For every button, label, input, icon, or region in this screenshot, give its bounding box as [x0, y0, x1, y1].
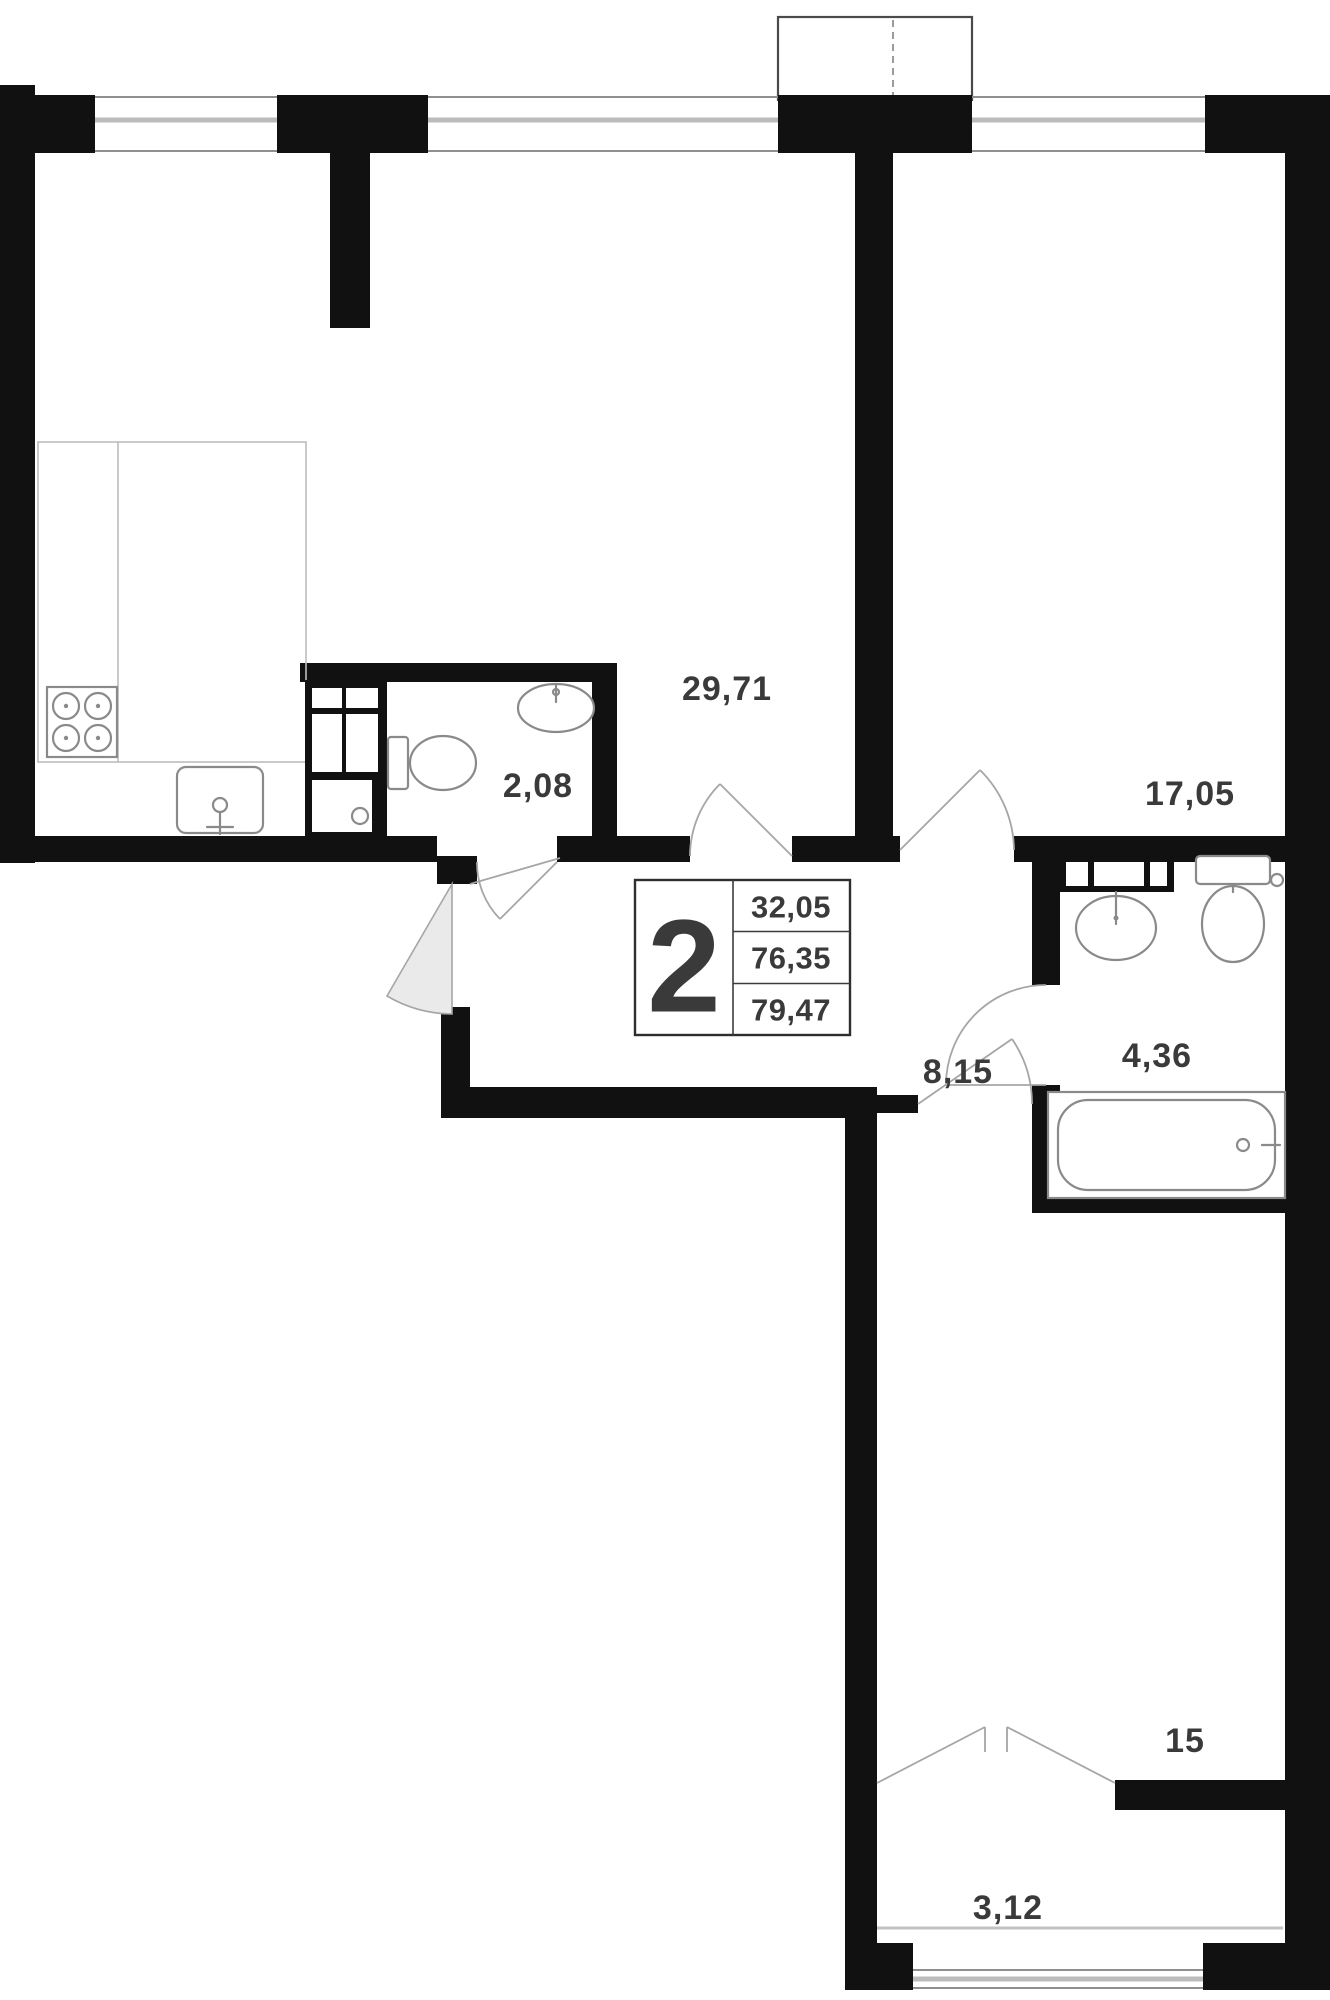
wall-top-pier-a [35, 95, 95, 153]
wall-room2-left [845, 1118, 877, 1990]
wall-hall-top-2 [792, 836, 900, 862]
info-area-1: 32,05 [751, 890, 831, 925]
room-label-balcony: 3,12 [973, 1889, 1043, 1927]
wall-balcony-bottom-right [1203, 1943, 1330, 1990]
wall-hall-top-1 [557, 836, 690, 862]
room-label-wc: 2,08 [503, 767, 573, 805]
room-label-bath: 4,36 [1122, 1037, 1192, 1075]
wall-entry-step [437, 856, 477, 884]
duct-shaft-block [305, 680, 387, 840]
wall-wc-right [592, 682, 617, 840]
info-area-2: 76,35 [751, 941, 831, 976]
wall-wc-top [300, 663, 617, 682]
wall-right [1285, 95, 1330, 1990]
info-room-count: 2 [647, 893, 720, 1040]
floor-plan-page: 29,71 2,08 17,05 8,15 4,36 15 3,12 2 32,… [0, 0, 1330, 2000]
wc-sink-icon [518, 684, 594, 732]
wall-living-bedroom [855, 153, 893, 836]
room-label-bedroom2: 15 [1165, 1722, 1205, 1760]
kitchen-sink-icon [177, 767, 263, 834]
wall-left [0, 85, 35, 863]
wall-stub-top [330, 153, 370, 328]
room-label-living: 29,71 [682, 670, 772, 708]
wall-stub-room2-left [877, 1095, 918, 1113]
info-area-3: 79,47 [751, 993, 831, 1028]
floor-plan-drawing: 29,71 2,08 17,05 8,15 4,36 15 3,12 2 32,… [0, 0, 1330, 2000]
stove-icon [47, 687, 117, 757]
wall-bath-bottom [1032, 1197, 1285, 1213]
room-label-hall: 8,15 [923, 1053, 993, 1091]
wall-top-pier-c [778, 95, 972, 153]
wall-hall-bottom [441, 1087, 877, 1118]
wall-top-pier-b [277, 95, 428, 153]
wall-bath-left-upper [1032, 860, 1060, 985]
wall-balcony-bottom-left [845, 1943, 913, 1990]
bathtub-icon [1048, 1092, 1285, 1198]
wall-room2-door-right [1115, 1780, 1330, 1810]
room-label-bedroom: 17,05 [1145, 775, 1235, 813]
roof-shaft-outline [778, 17, 972, 100]
unit-info-box: 2 32,05 76,35 79,47 [635, 880, 850, 1040]
wc-toilet-icon [388, 736, 476, 790]
